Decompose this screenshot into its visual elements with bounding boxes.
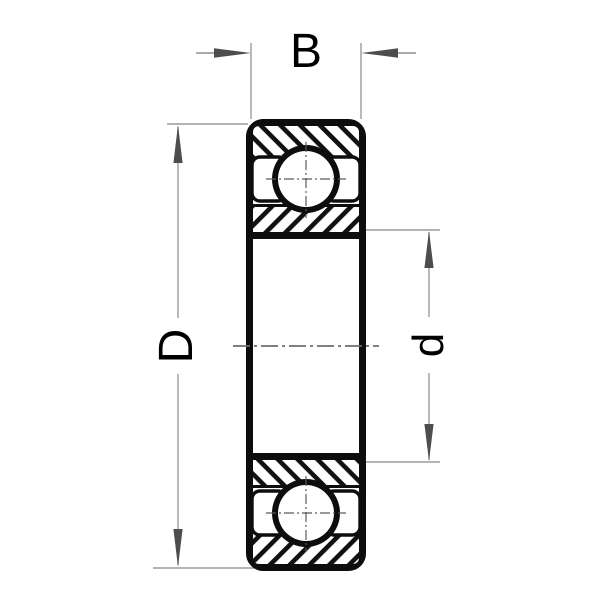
bore-diameter-dimension-label: d bbox=[399, 315, 459, 375]
bearing-diagram: B D d bbox=[0, 0, 600, 600]
bottom-section bbox=[247, 453, 366, 564]
bore-surface-top bbox=[247, 232, 366, 239]
d-bore-arrow-up-icon bbox=[424, 231, 433, 268]
outer-diameter-dimension-label: D bbox=[147, 316, 207, 376]
bearing-body bbox=[233, 123, 379, 568]
b-arrow-left-icon bbox=[214, 48, 251, 57]
d-out-arrow-up-icon bbox=[173, 125, 182, 163]
b-arrow-right-icon bbox=[361, 48, 398, 57]
top-section bbox=[247, 126, 366, 239]
d-out-arrow-down-icon bbox=[173, 529, 182, 567]
bore-surface-bottom bbox=[247, 453, 366, 460]
d-bore-arrow-down-icon bbox=[424, 424, 433, 461]
width-dimension-label: B bbox=[276, 26, 336, 78]
bearing-drawing bbox=[0, 0, 600, 600]
